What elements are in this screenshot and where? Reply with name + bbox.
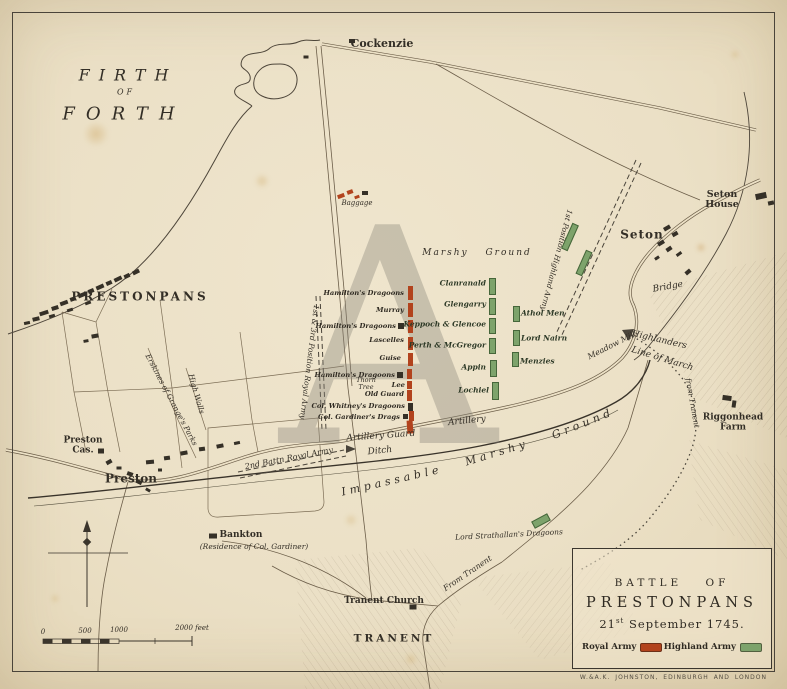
royal-unit-label: Col. Whitney's Dragoons — [311, 402, 405, 410]
map-title-box: BATTLE OF PRESTONPANS 21st September 174… — [572, 548, 772, 669]
label-preston-cas: Preston Cas. — [63, 436, 102, 455]
royal-unit-bar — [408, 353, 413, 366]
scale-bar — [43, 636, 192, 646]
royal-unit-label: Lascelles — [369, 336, 404, 344]
royal-unit-bar — [408, 403, 413, 411]
label-riggonhead-farm: Riggonhead Farm — [703, 413, 763, 432]
title-date: 21st September 1745. — [573, 617, 771, 631]
highland-unit-label: Keppoch & Glencoe — [404, 320, 486, 329]
arrow-2nd-battn — [346, 445, 356, 453]
highland-unit-label: Perth & McGregor — [409, 341, 486, 350]
royal-unit-label: Hamilton's Dragoons — [315, 322, 396, 330]
label-firth: FIRTH — [79, 66, 178, 83]
legend-royal-army: Royal Army — [582, 642, 662, 652]
label-tranent-church: Tranent Church — [344, 597, 424, 607]
highland-unit-bar — [490, 360, 497, 377]
highland-unit-bar — [513, 306, 520, 322]
building-mark — [722, 395, 732, 401]
highland-unit-label: Lord Nairn — [521, 334, 567, 343]
highland-unit-label: Appin — [461, 363, 486, 372]
shore-road — [322, 44, 756, 130]
royal-unit-bar — [407, 390, 412, 401]
label-scale-2000: 2000 feet — [175, 625, 209, 633]
label-seton-house: Seton House — [690, 190, 755, 211]
title-line2: PRESTONPANS — [573, 595, 771, 611]
building-mark — [146, 460, 154, 465]
highland-unit-label: Clanranald — [440, 279, 486, 288]
highland-unit-bar — [489, 318, 496, 334]
building-mark — [164, 456, 170, 461]
legend-highland-army: Highland Army — [664, 642, 762, 652]
highland-unit-bar — [489, 278, 496, 295]
map-credit: W.&A.K. JOHNSTON, EDINBURGH AND LONDON — [580, 674, 767, 681]
royal-unit-label: Lee — [392, 381, 405, 389]
royal-unit-label: Hamilton's Dragoons — [314, 371, 395, 379]
label-thorn-tree: Thorn Tree — [356, 377, 376, 391]
title-line1: BATTLE OF — [573, 577, 771, 589]
label-seton: Seton — [620, 229, 664, 242]
date-day: 21 — [599, 617, 616, 631]
legend-royal-label: Royal Army — [582, 642, 636, 652]
highland-army-swatch — [740, 643, 762, 652]
royal-unit-bar — [408, 303, 413, 317]
royal-unit-bar — [397, 372, 403, 378]
building-mark — [158, 469, 162, 472]
highland-unit-bar — [492, 382, 499, 400]
royal-army-swatch — [640, 643, 662, 652]
royal-unit-bar — [408, 286, 413, 300]
label-forth: FORTH — [62, 104, 185, 123]
label-scale-0: 0 — [41, 629, 45, 637]
compass — [48, 520, 128, 607]
royal-unit-label: Hamilton's Dragoons — [323, 289, 404, 297]
label-cockenzie: Cockenzie — [351, 38, 414, 50]
highland-unit-label: Menzies — [520, 357, 555, 366]
label-marshy-ground-ne: Marshy Ground — [422, 249, 532, 259]
label-scale-500: 500 — [78, 628, 91, 636]
label-bankton-residence: (Residence of Col. Gardiner) — [200, 543, 308, 551]
label-prestonpans: PRESTONPANS — [71, 291, 208, 304]
royal-unit-label: Guise — [380, 354, 401, 362]
royal-unit-label: Old Guard — [365, 390, 404, 398]
building-mark — [117, 467, 122, 470]
label-bankton: Bankton — [220, 531, 263, 541]
label-firth-of: OF — [117, 89, 135, 98]
highland-unit-bar — [512, 352, 519, 367]
royal-unit-bar — [407, 369, 412, 379]
royal-unit-label: Murray — [376, 306, 404, 314]
legend: Royal Army Highland Army — [573, 642, 771, 652]
building-mark — [199, 447, 205, 452]
royal-unit-bar — [403, 414, 408, 419]
label-scale-1000: 1000 — [110, 627, 128, 635]
label-baggage: Baggage — [341, 200, 372, 208]
legend-highland-label: Highland Army — [664, 642, 736, 652]
royal-unit-bar — [407, 381, 412, 389]
date-rest: September 1745. — [624, 617, 744, 631]
building-mark — [362, 191, 368, 195]
building-mark — [304, 56, 309, 59]
label-preston: Preston — [105, 473, 157, 486]
highland-unit-bar — [489, 298, 496, 315]
highland-unit-bar — [489, 338, 496, 354]
hachure-southeast — [688, 440, 787, 560]
highland-unit-bar — [513, 330, 520, 346]
royal-unit-label: Col. Gardiner's Drags — [318, 413, 400, 421]
highland-unit-label: Glengarry — [444, 300, 486, 309]
map-canvas: A Hamilton's DragoonsMurrayHamilton's Dr… — [0, 0, 787, 689]
royal-unit-bar — [409, 411, 414, 421]
label-tranent: TRANENT — [354, 633, 435, 644]
highland-unit-label: Lochiel — [458, 386, 489, 395]
building-mark — [209, 534, 217, 539]
